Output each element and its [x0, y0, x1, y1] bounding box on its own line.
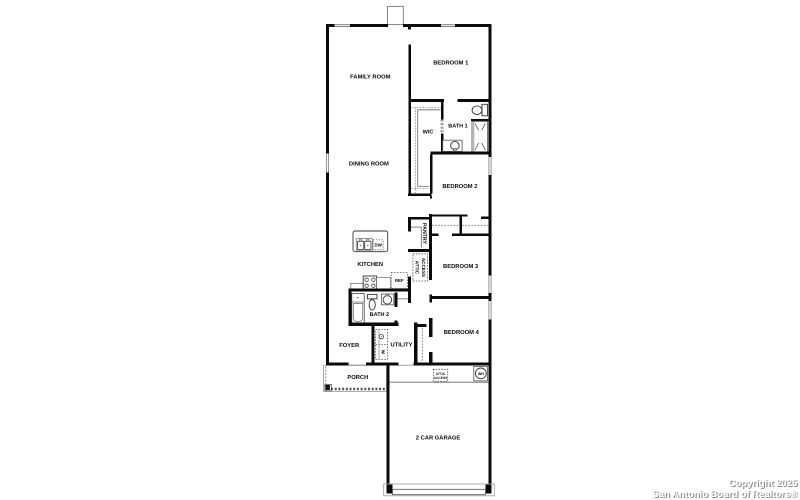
svg-text:BEDROOM 2: BEDROOM 2 [442, 183, 477, 190]
svg-text:PORCH: PORCH [347, 374, 368, 381]
svg-text:FOYER: FOYER [339, 342, 360, 349]
svg-text:FAMILY ROOM: FAMILY ROOM [350, 74, 390, 81]
svg-text:REF: REF [395, 278, 404, 283]
svg-text:WIC: WIC [423, 129, 434, 135]
svg-text:DINING ROOM: DINING ROOM [349, 161, 389, 168]
svg-text:BEDROOM 1: BEDROOM 1 [433, 59, 469, 66]
svg-text:BEDROOM 4: BEDROOM 4 [444, 329, 480, 336]
svg-text:ACCESS: ACCESS [421, 258, 426, 277]
svg-text:ACCESS: ACCESS [434, 376, 449, 380]
svg-text:BATH 1: BATH 1 [448, 124, 467, 130]
svg-text:UTILITY: UTILITY [391, 343, 413, 349]
svg-text:W: W [381, 350, 386, 355]
svg-text:ATTIC: ATTIC [414, 261, 419, 275]
svg-text:Copyright 2025: Copyright 2025 [729, 478, 798, 489]
svg-text:WH: WH [478, 372, 484, 376]
svg-text:DW: DW [375, 242, 383, 247]
svg-text:BATH 2: BATH 2 [370, 312, 389, 318]
svg-text:PANTRY: PANTRY [421, 223, 427, 245]
svg-text:BEDROOM 3: BEDROOM 3 [443, 263, 479, 270]
svg-text:San Antonio Board of Realtors®: San Antonio Board of Realtors® [652, 489, 797, 500]
svg-text:KITCHEN: KITCHEN [357, 261, 383, 268]
svg-text:2 CAR GARAGE: 2 CAR GARAGE [416, 434, 461, 441]
